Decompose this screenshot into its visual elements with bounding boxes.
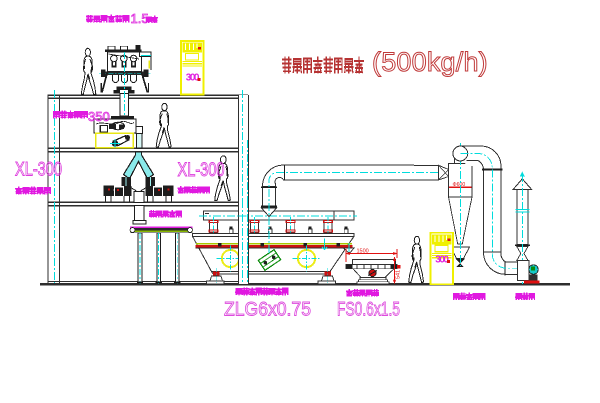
svg-text:541: 541 (396, 270, 402, 279)
svg-text:(500kg/h): (500kg/h) (372, 47, 488, 77)
svg-text:350: 350 (88, 109, 110, 124)
svg-text:XL-300: XL-300 (15, 160, 62, 181)
svg-text:XL-300: XL-300 (178, 160, 225, 181)
svg-text:1500: 1500 (357, 248, 369, 254)
svg-text:ZLG6x0.75: ZLG6x0.75 (224, 299, 311, 321)
svg-text:300: 300 (435, 254, 449, 265)
svg-text:300: 300 (186, 73, 200, 84)
svg-text:FS0.6x1.5: FS0.6x1.5 (337, 299, 400, 321)
